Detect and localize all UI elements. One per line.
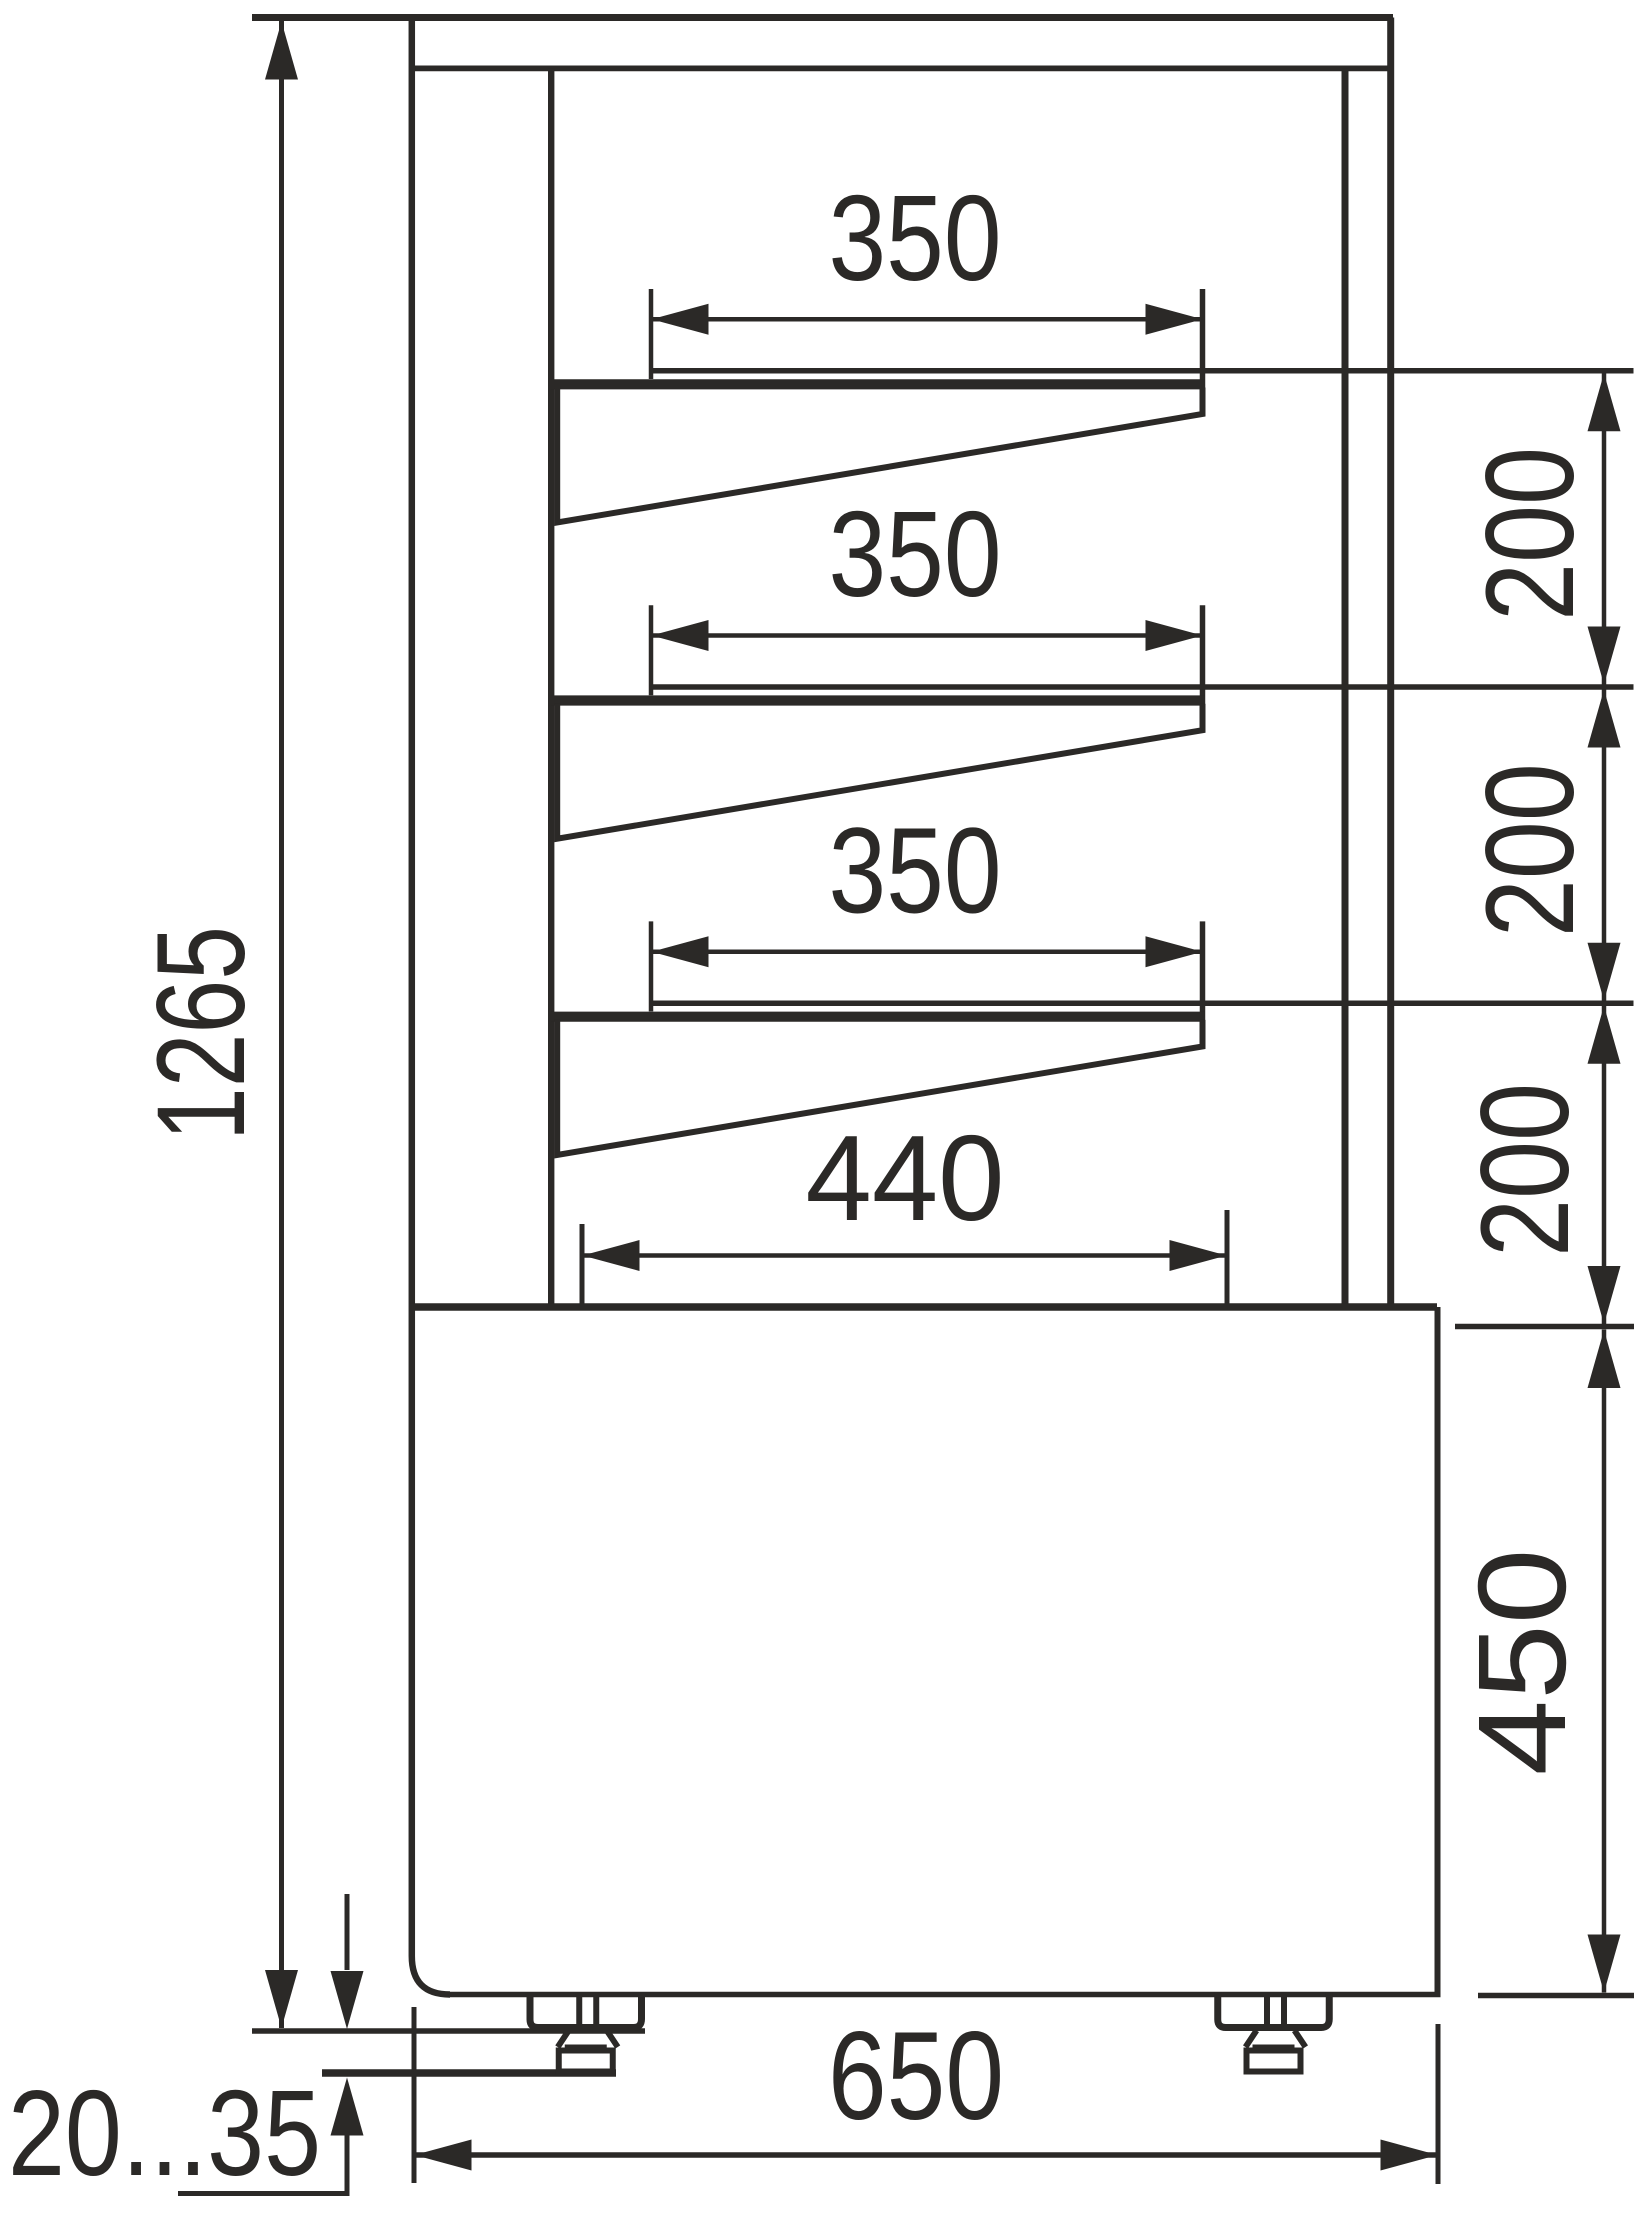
svg-text:350: 350 — [829, 486, 1002, 622]
svg-text:440: 440 — [806, 1110, 1005, 1246]
svg-text:450: 450 — [1453, 1549, 1592, 1776]
svg-text:20...35: 20...35 — [8, 2065, 321, 2201]
svg-text:200: 200 — [1456, 1083, 1595, 1257]
svg-text:1265: 1265 — [132, 926, 271, 1141]
svg-text:350: 350 — [829, 170, 1002, 306]
svg-text:650: 650 — [828, 2007, 1004, 2146]
svg-text:200: 200 — [1461, 447, 1600, 621]
svg-text:350: 350 — [829, 802, 1002, 938]
svg-text:200: 200 — [1461, 763, 1600, 937]
